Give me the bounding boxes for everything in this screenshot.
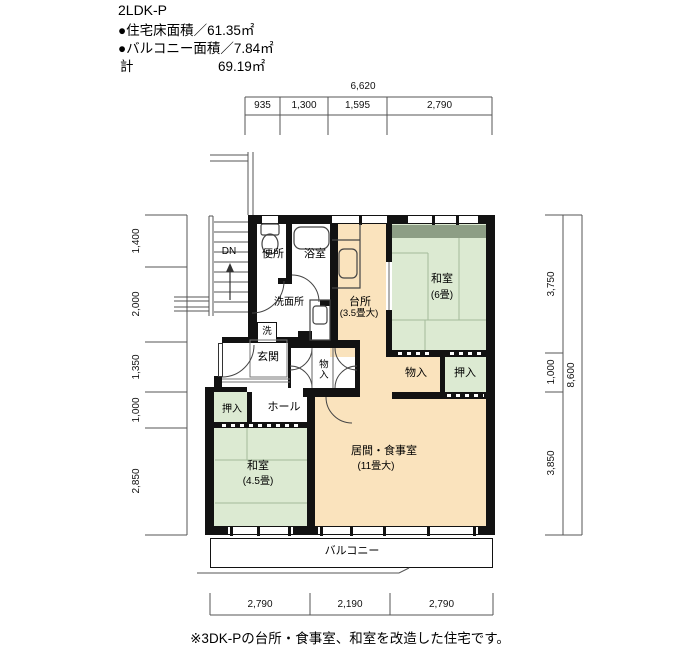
room-label-bath: 浴室 — [296, 248, 334, 261]
kitchen-sink-icon — [339, 249, 357, 278]
room-label-storage-entrance: 物入 — [316, 351, 327, 387]
dimension-lines — [145, 97, 582, 615]
balcony-ground-line — [197, 568, 409, 573]
dim-left: 1,350 — [131, 345, 143, 389]
room-label-kitchen-size: (3.5畳大) — [328, 309, 390, 320]
dim-top: 1,300 — [280, 100, 328, 111]
dim-bottom: 2,790 — [210, 599, 310, 610]
dim-right: 1,000 — [546, 350, 558, 394]
room-label-washitsu6-size: (6畳) — [420, 290, 464, 302]
dim-left: 2,850 — [131, 459, 143, 503]
dim-right: 3,850 — [546, 441, 558, 485]
room-label-living: 居間・食事室 — [344, 445, 424, 458]
room-label-balcony: バルコニー — [312, 545, 392, 558]
dim-top: 1,595 — [328, 100, 387, 111]
room-label-washitsu45: 和室 — [236, 460, 280, 473]
room-label-storage-right: 物入 — [394, 367, 438, 380]
dim-right-total: 8,600 — [566, 353, 578, 397]
dim-bottom: 2,790 — [390, 599, 493, 610]
stairs-dn-label: DN — [216, 246, 242, 258]
stairs — [209, 216, 248, 316]
dim-left: 1,000 — [131, 388, 143, 432]
room-label-hall: ホール — [262, 401, 306, 414]
dim-bottom: 2,190 — [310, 599, 390, 610]
room-label-washer: 洗 — [257, 327, 277, 338]
dim-top: 2,790 — [387, 100, 492, 111]
room-label-kitchen: 台所 — [338, 296, 382, 309]
kitchen-counter — [332, 224, 360, 288]
dim-left: 1,400 — [131, 219, 143, 263]
dim-top: 935 — [245, 100, 280, 111]
room-label-living-size: (11畳大) — [345, 461, 407, 473]
room-label-washroom: 洗面所 — [262, 297, 316, 309]
bathtub-icon — [294, 227, 329, 249]
footer-note: ※3DK-Pの台所・食事室、和室を改造した住宅です。 — [0, 627, 700, 647]
hall-living-door-arc — [326, 397, 352, 423]
dim-left: 2,000 — [131, 282, 143, 326]
room-label-washitsu45-size: (4.5畳) — [230, 476, 286, 488]
room-label-entrance: 玄関 — [246, 351, 290, 364]
dim-right: 3,750 — [546, 262, 558, 306]
dim-top-total: 6,620 — [338, 81, 388, 92]
room-label-closet-hall: 押入 — [213, 404, 251, 416]
room-label-washitsu6: 和室 — [420, 273, 464, 286]
floor-plan-page: 2LDK-P ●住宅床面積／61.35㎡ ●バルコニー面積／7.84㎡ 計 69… — [0, 0, 700, 650]
room-label-closet-right: 押入 — [443, 367, 487, 380]
room-label-toilet: 便所 — [256, 248, 290, 261]
